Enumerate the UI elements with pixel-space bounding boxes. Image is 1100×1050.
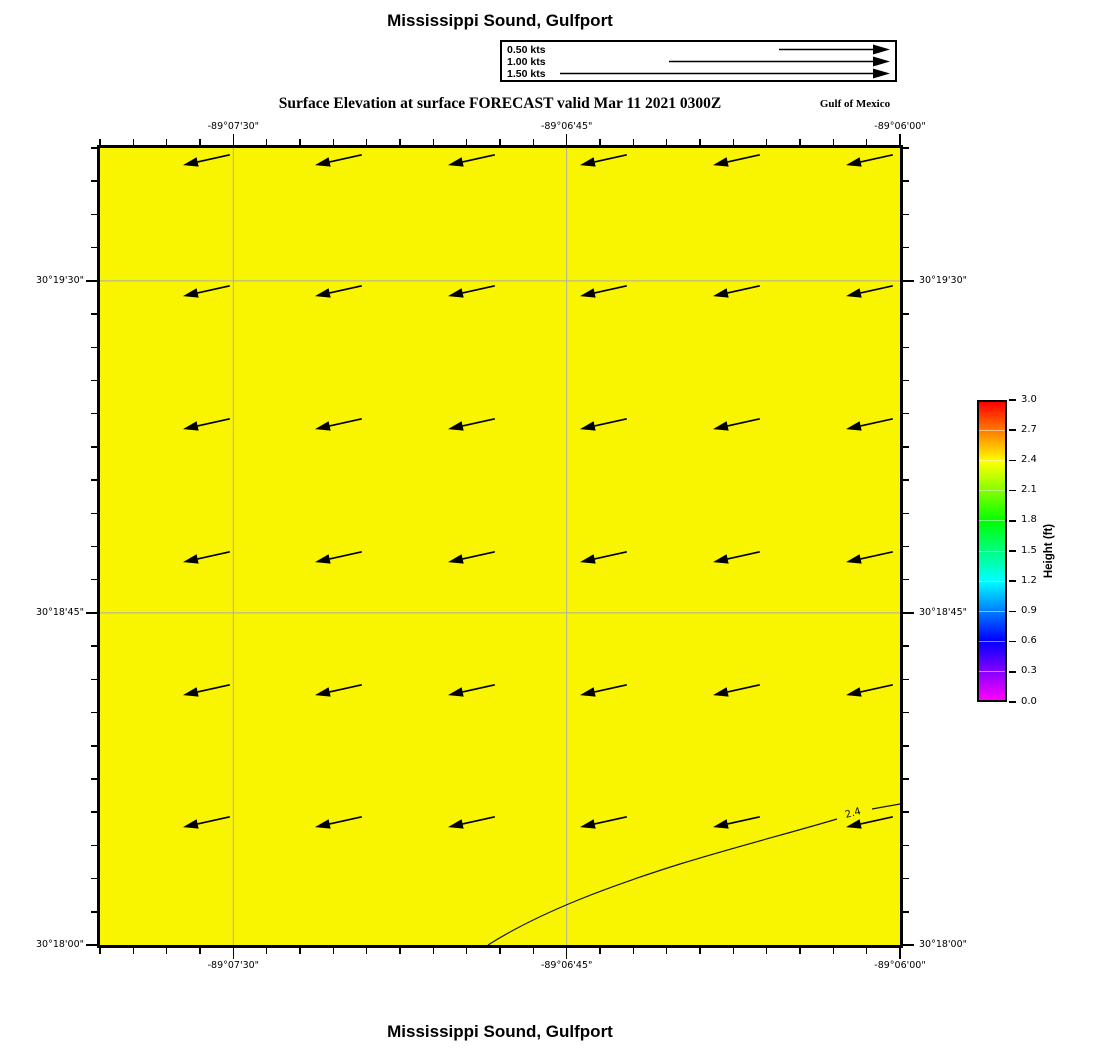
axis-tick-right — [903, 446, 909, 448]
axis-tick-right — [903, 147, 909, 149]
colorbar-tick — [1009, 550, 1016, 552]
axis-tick-bottom — [433, 948, 435, 954]
axis-tick-right — [903, 845, 909, 847]
colorbar-level-line — [979, 641, 1005, 642]
axis-tick-left — [91, 579, 97, 581]
axis-tick-top — [266, 139, 268, 145]
map-canvas: 2.4 — [100, 148, 900, 945]
axis-tick-top — [533, 139, 535, 145]
page-title-bottom: Mississippi Sound, Gulfport — [0, 1022, 1000, 1042]
colorbar-tick-label: 2.7 — [1021, 424, 1051, 435]
axis-tick-bottom — [166, 948, 168, 954]
axis-tick-left — [91, 214, 97, 216]
axis-tick-top — [633, 139, 635, 145]
legend-arrow — [560, 69, 890, 79]
colorbar-tick — [1009, 520, 1016, 522]
lat-label-left: 30°19'30" — [2, 275, 84, 286]
axis-tick-top — [799, 139, 801, 145]
axis-tick-right — [903, 180, 909, 182]
axis-tick-left — [91, 645, 97, 647]
axis-tick-left — [91, 778, 97, 780]
axis-tick-left — [91, 679, 97, 681]
axis-tick-bottom — [499, 948, 501, 954]
lon-label-top: -89°06'00" — [840, 121, 960, 132]
colorbar-tick-label: 0.9 — [1021, 605, 1051, 616]
legend-arrow — [779, 45, 890, 55]
axis-tick-bottom — [833, 948, 835, 954]
colorbar-level-line — [979, 581, 1005, 582]
axis-tick-right — [903, 612, 914, 614]
colorbar-tick-label: 1.2 — [1021, 575, 1051, 586]
axis-tick-left — [86, 280, 97, 282]
colorbar-tick-label: 3.0 — [1021, 394, 1051, 405]
axis-tick-top — [233, 134, 235, 145]
axis-tick-left — [91, 446, 97, 448]
axis-tick-bottom — [599, 948, 601, 954]
axis-tick-left — [91, 911, 97, 913]
colorbar-level-line — [979, 460, 1005, 461]
colorbar-tick-label: 2.4 — [1021, 454, 1051, 465]
axis-tick-top — [433, 139, 435, 145]
axis-tick-right — [903, 214, 909, 216]
axis-tick-right — [903, 380, 909, 382]
axis-tick-left — [91, 811, 97, 813]
colorbar-level-line — [979, 551, 1005, 552]
axis-tick-left — [91, 546, 97, 548]
lon-label-bottom: -89°06'45" — [507, 960, 627, 971]
axis-tick-top — [599, 139, 601, 145]
axis-tick-right — [903, 878, 909, 880]
axis-tick-top — [733, 139, 735, 145]
axis-tick-top — [99, 139, 101, 145]
axis-tick-top — [399, 139, 401, 145]
axis-tick-top — [566, 134, 568, 145]
legend-arrow-head — [873, 69, 890, 79]
axis-tick-left — [91, 513, 97, 515]
axis-tick-bottom — [133, 948, 135, 954]
axis-tick-right — [903, 513, 909, 515]
axis-tick-right — [903, 347, 909, 349]
forecast-plot-page: Mississippi Sound, Gulfport 0.50 kts1.00… — [0, 0, 1100, 1050]
axis-tick-bottom — [233, 948, 235, 959]
axis-tick-left — [91, 147, 97, 149]
axis-tick-top — [466, 139, 468, 145]
axis-tick-top — [499, 139, 501, 145]
axis-tick-top — [699, 139, 701, 145]
lat-label-right: 30°19'30" — [919, 275, 1009, 286]
area-label: Gulf of Mexico — [790, 98, 920, 110]
axis-tick-bottom — [533, 948, 535, 954]
axis-tick-left — [91, 247, 97, 249]
axis-tick-right — [903, 645, 909, 647]
axis-tick-bottom — [666, 948, 668, 954]
axis-tick-right — [903, 546, 909, 548]
axis-tick-right — [903, 811, 909, 813]
legend-arrow — [669, 57, 890, 67]
colorbar-tick — [1009, 701, 1016, 703]
axis-tick-left — [91, 313, 97, 315]
colorbar-tick — [1009, 429, 1016, 431]
colorbar-tick-label: 0.6 — [1021, 635, 1051, 646]
axis-tick-left — [91, 712, 97, 714]
axis-tick-right — [903, 247, 909, 249]
colorbar-tick — [1009, 490, 1016, 492]
axis-tick-bottom — [766, 948, 768, 954]
axis-tick-left — [91, 479, 97, 481]
colorbar-tick-label: 1.5 — [1021, 545, 1051, 556]
colorbar-tick — [1009, 580, 1016, 582]
axis-tick-top — [766, 139, 768, 145]
axis-tick-right — [903, 313, 909, 315]
axis-tick-right — [903, 712, 909, 714]
axis-tick-right — [903, 413, 909, 415]
legend-arrow-head — [873, 45, 890, 55]
axis-tick-left — [91, 845, 97, 847]
axis-tick-bottom — [566, 948, 568, 959]
colorbar-tick-label: 2.1 — [1021, 484, 1051, 495]
speed-legend: 0.50 kts1.00 kts1.50 kts — [500, 40, 897, 82]
page-title-top: Mississippi Sound, Gulfport — [0, 11, 1000, 31]
colorbar-tick — [1009, 641, 1016, 643]
colorbar-tick — [1009, 460, 1016, 462]
axis-tick-right — [903, 579, 909, 581]
sea-surface-fill — [100, 148, 900, 945]
axis-tick-left — [91, 180, 97, 182]
axis-tick-bottom — [466, 948, 468, 954]
axis-tick-bottom — [99, 948, 101, 954]
axis-tick-top — [133, 139, 135, 145]
colorbar-tick-label: 1.8 — [1021, 514, 1051, 525]
axis-tick-left — [86, 612, 97, 614]
axis-tick-top — [299, 139, 301, 145]
axis-tick-bottom — [866, 948, 868, 954]
axis-tick-left — [91, 347, 97, 349]
axis-tick-bottom — [333, 948, 335, 954]
speed-legend-arrows — [502, 42, 895, 80]
axis-tick-bottom — [266, 948, 268, 954]
axis-tick-right — [903, 944, 914, 946]
axis-tick-right — [903, 479, 909, 481]
axis-tick-bottom — [366, 948, 368, 954]
axis-tick-bottom — [299, 948, 301, 954]
lon-label-bottom: -89°07'30" — [173, 960, 293, 971]
colorbar-tick — [1009, 611, 1016, 613]
axis-tick-bottom — [899, 948, 901, 959]
axis-tick-bottom — [633, 948, 635, 954]
colorbar-tick-label: 0.0 — [1021, 696, 1051, 707]
axis-tick-top — [833, 139, 835, 145]
lat-label-left: 30°18'00" — [2, 939, 84, 950]
lon-label-top: -89°07'30" — [173, 121, 293, 132]
axis-tick-bottom — [733, 948, 735, 954]
axis-tick-top — [199, 139, 201, 145]
lat-label-right: 30°18'00" — [919, 939, 1009, 950]
colorbar-tick — [1009, 399, 1016, 401]
axis-tick-left — [91, 878, 97, 880]
colorbar-tick — [1009, 671, 1016, 673]
lat-label-left: 30°18'45" — [2, 607, 84, 618]
axis-tick-top — [866, 139, 868, 145]
axis-tick-left — [91, 745, 97, 747]
axis-tick-left — [91, 380, 97, 382]
axis-tick-top — [366, 139, 368, 145]
axis-tick-top — [899, 134, 901, 145]
axis-tick-right — [903, 745, 909, 747]
lat-label-right: 30°18'45" — [919, 607, 1009, 618]
colorbar-tick-label: 0.3 — [1021, 665, 1051, 676]
legend-arrow-head — [873, 57, 890, 67]
colorbar-level-line — [979, 490, 1005, 491]
colorbar-level-line — [979, 430, 1005, 431]
axis-tick-right — [903, 280, 914, 282]
axis-tick-bottom — [199, 948, 201, 954]
axis-tick-right — [903, 911, 909, 913]
lon-label-bottom: -89°06'00" — [840, 960, 960, 971]
colorbar-level-line — [979, 671, 1005, 672]
axis-tick-left — [86, 944, 97, 946]
axis-tick-top — [666, 139, 668, 145]
lon-label-top: -89°06'45" — [507, 121, 627, 132]
axis-tick-right — [903, 679, 909, 681]
axis-tick-right — [903, 778, 909, 780]
axis-tick-bottom — [699, 948, 701, 954]
axis-tick-top — [166, 139, 168, 145]
colorbar-level-line — [979, 520, 1005, 521]
axis-tick-bottom — [399, 948, 401, 954]
axis-tick-top — [333, 139, 335, 145]
axis-tick-left — [91, 413, 97, 415]
colorbar-level-line — [979, 611, 1005, 612]
axis-tick-bottom — [799, 948, 801, 954]
